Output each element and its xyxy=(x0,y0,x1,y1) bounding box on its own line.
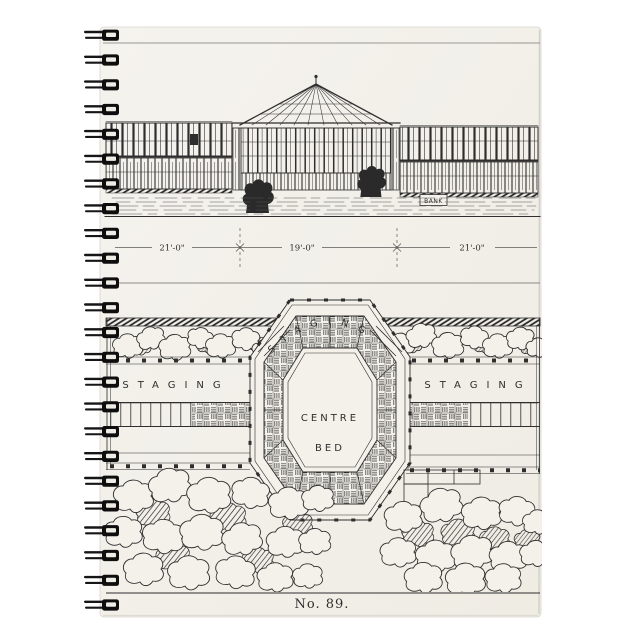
bank-sign-label: BANK xyxy=(424,198,443,205)
dim-label-right: 21'-0" xyxy=(459,244,484,254)
dim-label-left: 21'-0" xyxy=(159,244,184,254)
central-octagon xyxy=(250,300,410,520)
dim-label-center: 19'-0" xyxy=(289,244,314,254)
staging-label-right: STAGING xyxy=(424,380,531,391)
elevation-left-wing xyxy=(106,122,232,194)
notebook-image: BANK 21'-0" 19'-0" 21'-0" xyxy=(0,0,644,644)
staging-label-left: STAGING xyxy=(122,380,229,391)
elevation-right-wing xyxy=(400,126,538,198)
roof-finial xyxy=(314,75,317,78)
bed-label: BED xyxy=(315,443,345,454)
elevation-dark-accent xyxy=(190,134,198,145)
caption: No. 89. xyxy=(295,597,350,612)
centre-bed-label: CENTRE xyxy=(301,413,359,424)
notebook-product-photo: BANK 21'-0" 19'-0" 21'-0" xyxy=(0,0,644,644)
bank-sign: BANK xyxy=(420,195,447,206)
